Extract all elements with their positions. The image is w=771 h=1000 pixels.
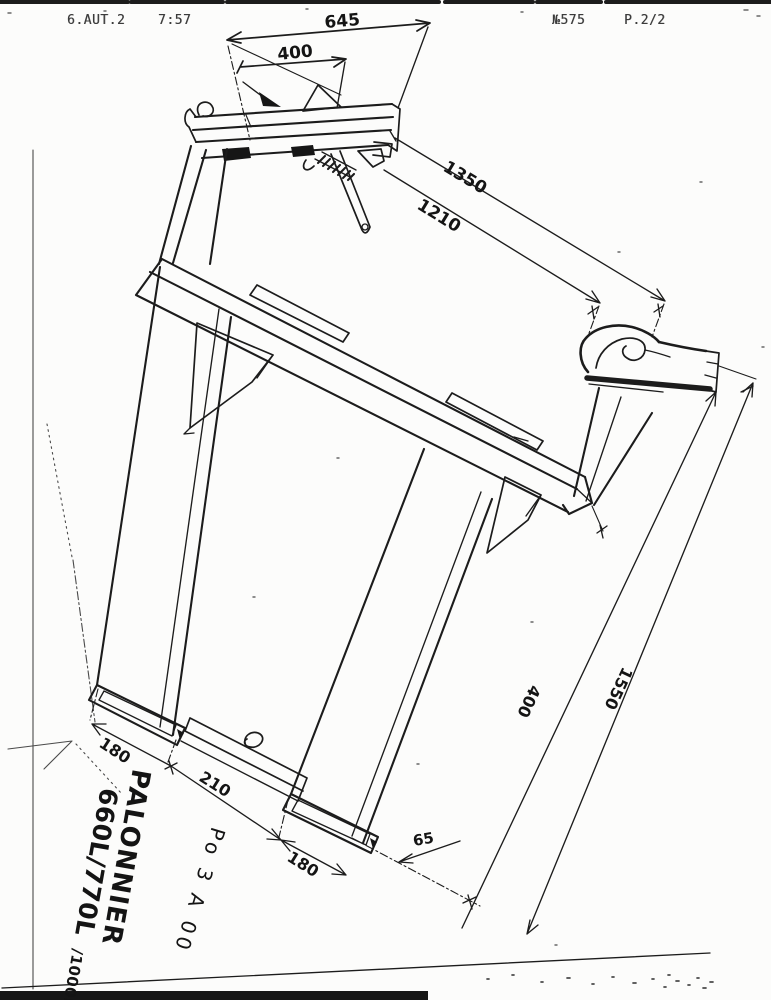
rear-bar-left [250,285,349,342]
dimension-fork-tip: 65 [399,829,460,863]
link-squiggle [245,732,263,747]
dim-180-left-label: 180 [96,733,134,767]
lifting-lug [303,85,341,111]
hook-post [574,388,652,505]
gusset-right [487,477,541,553]
dimension-fork-spacing: 210 [171,766,281,840]
main-beam [136,259,592,514]
dimension-overall-height: 1550 [527,366,756,934]
dimension-beam-outer: 1350 [390,131,665,337]
title-block: PALONNIER 660L/770L /1000L Po 3 A 00 [59,767,230,1000]
fork-prong-right [283,449,492,853]
dimension-beam-inner: 1210 [384,170,600,336]
dim-180-right-label: 180 [284,847,322,881]
c-hook [581,325,719,392]
dim-400-top-label: 400 [276,41,314,65]
fax-page: 6.AUT.2 7:57 №575 P.2/2 [0,0,771,1000]
drawing-reference: Po 3 A 00 [169,825,230,957]
technical-drawing: 645 400 1350 1210 400 [0,0,771,1000]
fork-prong-left [89,267,231,745]
dimension-hook-drop: 400 [462,392,716,928]
dimension-top-inner: 400 [237,41,346,108]
cross-bar [181,718,307,801]
dim-1210-label: 1210 [413,195,464,237]
dim-1550-label: 1550 [601,664,637,712]
head-post [159,146,227,264]
dim-1350-label: 1350 [439,157,490,199]
dim-400-right-label: 400 [513,682,544,720]
spring-detail [304,152,356,180]
weld-block [291,145,315,157]
dimension-fork-right-width: 180 [279,800,480,906]
pointer-arrowhead [259,92,281,107]
dim-65-label: 65 [412,829,436,850]
lifting-head-beam [159,82,400,264]
dim-645-label: 645 [324,10,361,33]
safety-latch-strut [331,151,370,233]
